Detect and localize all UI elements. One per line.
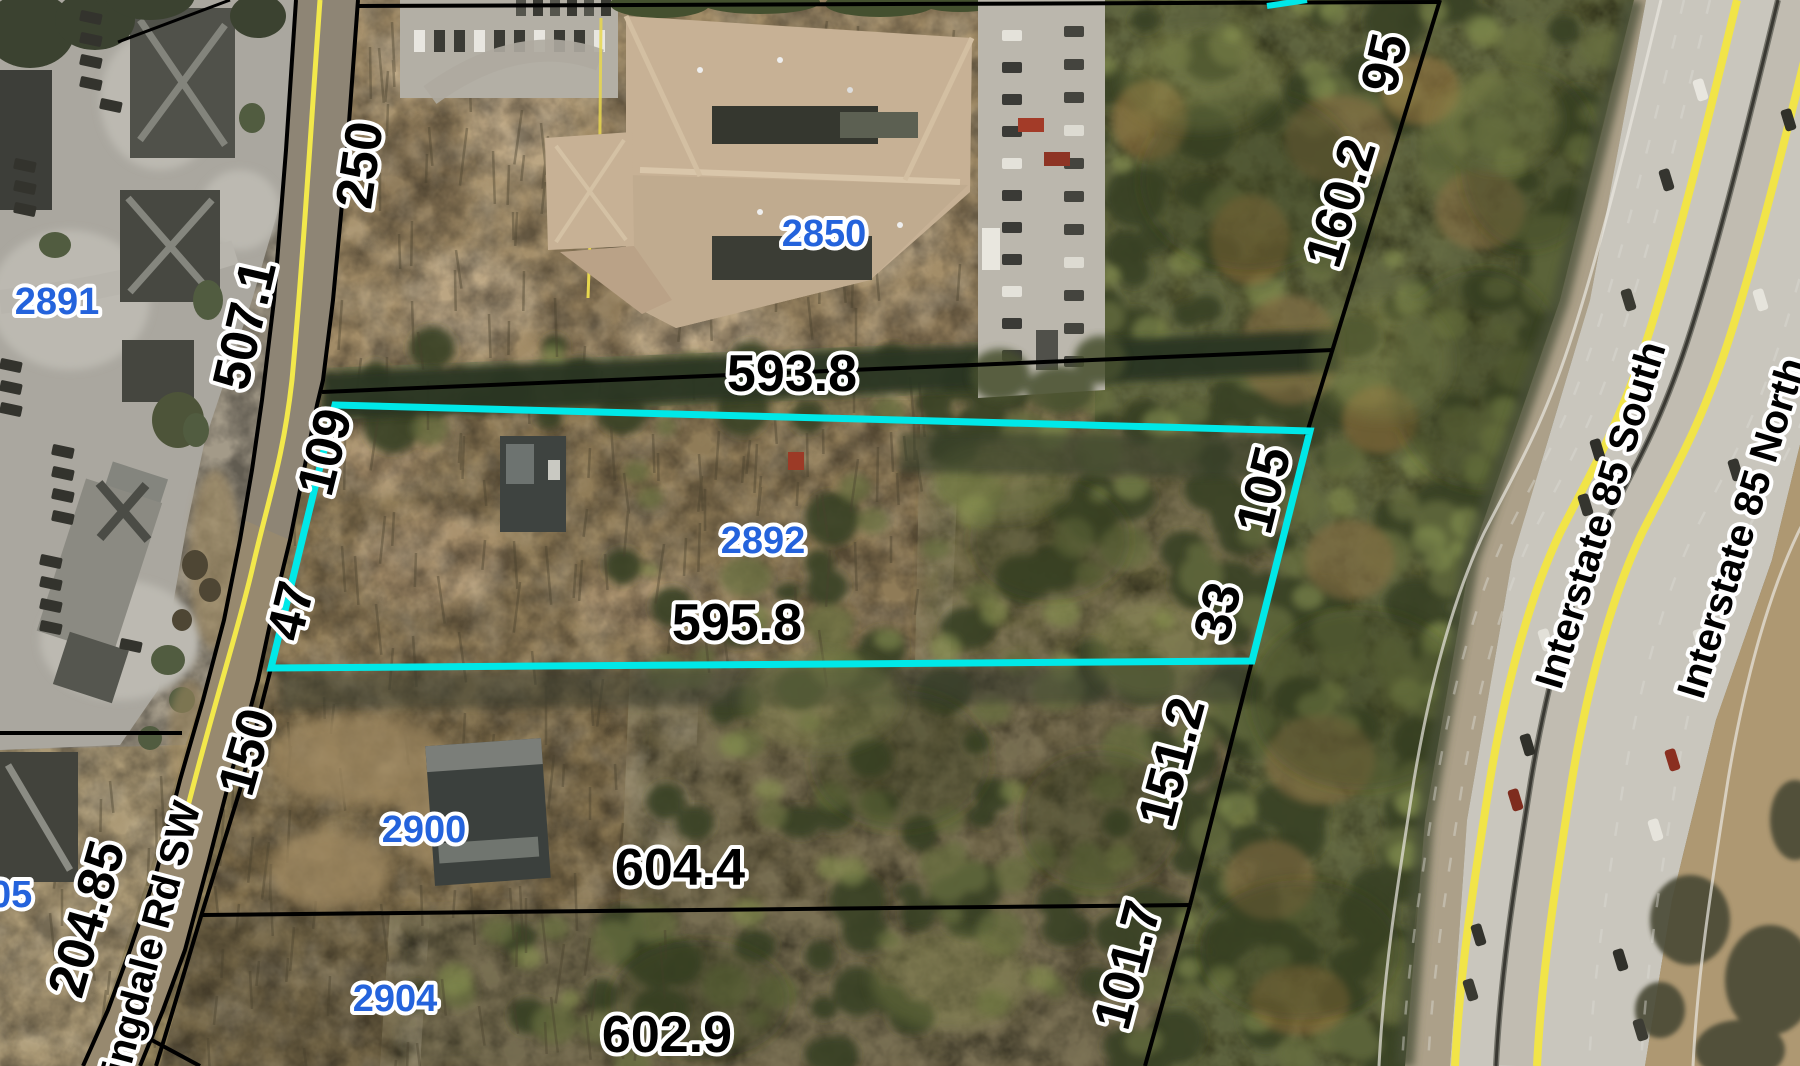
svg-text:602.9: 602.9: [602, 1006, 732, 1064]
svg-text:604.4: 604.4: [615, 839, 745, 897]
svg-text:2850: 2850: [782, 213, 867, 255]
svg-text:2904: 2904: [353, 978, 438, 1020]
svg-text:250: 250: [325, 118, 395, 212]
svg-text:593.8: 593.8: [727, 345, 857, 403]
svg-text:2891: 2891: [15, 281, 100, 323]
svg-text:2905: 2905: [0, 874, 32, 916]
svg-text:595.8: 595.8: [672, 594, 802, 652]
svg-text:2892: 2892: [721, 520, 806, 562]
svg-text:2900: 2900: [382, 809, 467, 851]
